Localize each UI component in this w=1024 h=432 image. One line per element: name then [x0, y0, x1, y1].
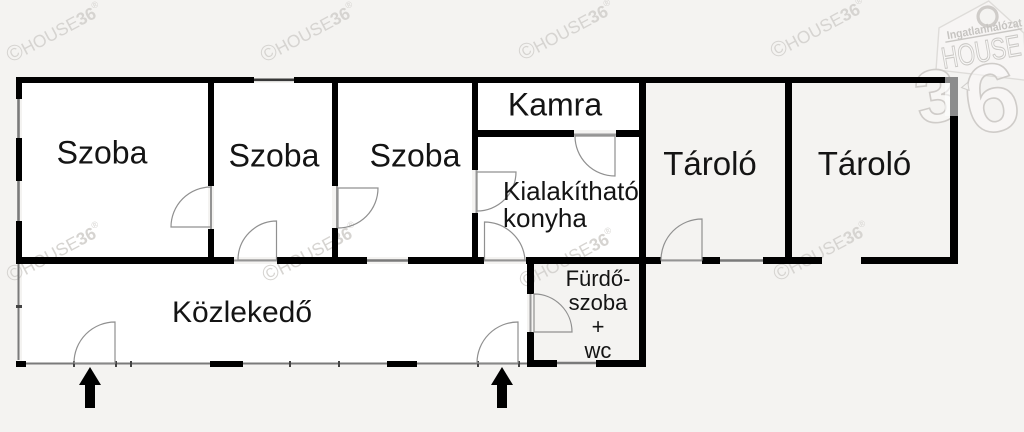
svg-text:wc: wc [584, 338, 612, 363]
svg-text:Tároló: Tároló [818, 145, 912, 182]
svg-text:konyha: konyha [503, 203, 587, 233]
svg-text:Szoba: Szoba [229, 138, 320, 174]
svg-text:Fürdő-: Fürdő- [566, 266, 631, 291]
svg-text:Közlekedő: Közlekedő [172, 296, 312, 329]
svg-text:Kialakítható: Kialakítható [503, 176, 639, 206]
svg-text:+: + [592, 314, 605, 339]
svg-text:Kamra: Kamra [508, 87, 602, 123]
svg-text:Szoba: Szoba [370, 138, 461, 174]
svg-text:Szoba: Szoba [57, 135, 148, 171]
svg-text:Tároló: Tároló [663, 145, 757, 182]
svg-text:szoba: szoba [569, 290, 628, 315]
